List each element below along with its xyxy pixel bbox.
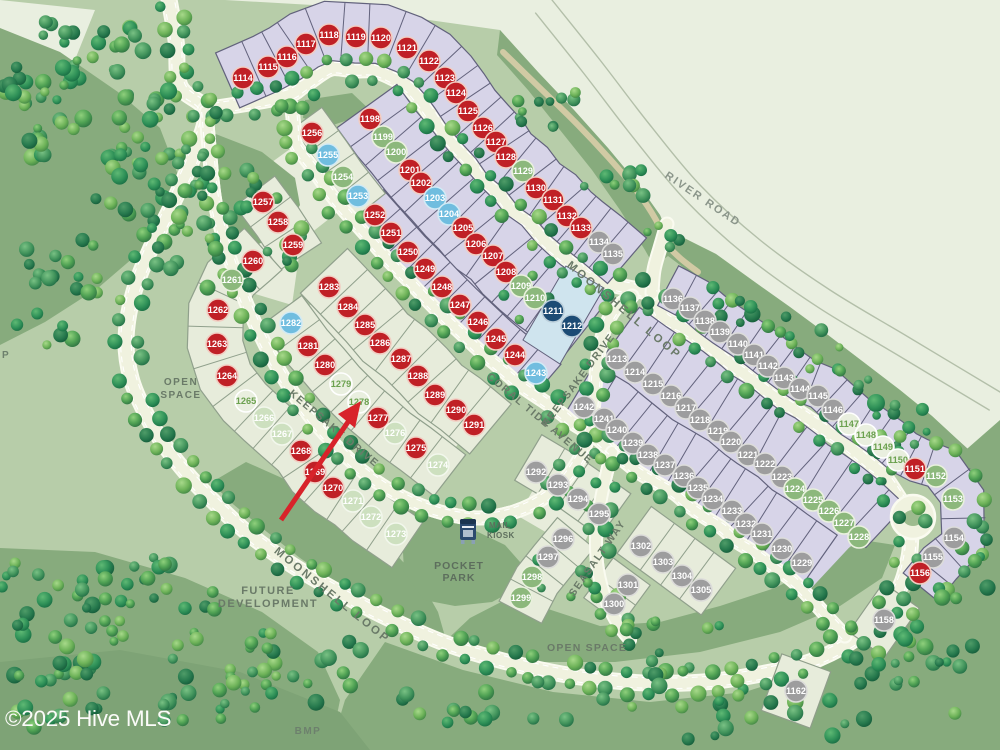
svg-text:1282: 1282 [281,318,301,328]
svg-text:1265: 1265 [236,396,256,406]
svg-text:1114: 1114 [233,73,253,83]
svg-text:1289: 1289 [425,390,445,400]
svg-text:1271: 1271 [343,496,363,506]
svg-text:1130: 1130 [526,183,546,193]
svg-text:1214: 1214 [625,367,646,377]
svg-text:1116: 1116 [277,52,296,62]
svg-text:POCKET: POCKET [434,560,484,572]
svg-text:1299: 1299 [511,593,531,603]
svg-text:1126: 1126 [473,123,493,133]
svg-text:1158: 1158 [874,615,894,625]
svg-text:1218: 1218 [690,415,710,425]
svg-text:1208: 1208 [496,267,516,277]
svg-text:1261: 1261 [222,275,242,285]
svg-text:1240: 1240 [607,425,627,435]
svg-text:1231: 1231 [752,529,772,539]
svg-text:1250: 1250 [398,247,418,257]
svg-text:1272: 1272 [361,512,381,522]
svg-text:1162: 1162 [786,686,806,696]
svg-text:1290: 1290 [446,405,466,415]
svg-text:P: P [2,350,10,361]
svg-text:1259: 1259 [283,240,303,250]
svg-text:1274: 1274 [428,460,449,470]
svg-text:1220: 1220 [721,437,741,447]
svg-text:1254: 1254 [333,172,354,182]
svg-text:1264: 1264 [217,371,238,381]
svg-text:1292: 1292 [526,467,546,477]
svg-text:1260: 1260 [243,256,263,266]
svg-text:1293: 1293 [548,480,568,490]
svg-text:1302: 1302 [631,541,651,551]
svg-text:1270: 1270 [323,483,343,493]
svg-text:1258: 1258 [268,217,288,227]
svg-text:1123: 1123 [435,73,455,83]
svg-text:1295: 1295 [589,509,609,519]
svg-text:1122: 1122 [419,56,439,66]
svg-text:1121: 1121 [397,43,417,53]
svg-text:1228: 1228 [849,532,869,542]
svg-text:1249: 1249 [415,264,435,274]
svg-text:1237: 1237 [655,460,675,470]
svg-text:1300: 1300 [604,599,624,609]
svg-text:1203: 1203 [425,193,445,203]
svg-text:1298: 1298 [522,572,542,582]
svg-text:1279: 1279 [331,379,351,389]
svg-text:1131: 1131 [543,195,563,205]
svg-text:1200: 1200 [386,147,406,157]
svg-text:1147: 1147 [839,419,859,429]
svg-text:FUTURE: FUTURE [241,585,295,597]
svg-text:1120: 1120 [371,33,391,43]
svg-text:1199: 1199 [373,132,393,142]
svg-text:1206: 1206 [466,239,486,249]
svg-text:1205: 1205 [453,223,473,233]
svg-text:1213: 1213 [607,354,627,364]
svg-text:1118: 1118 [319,30,338,40]
svg-text:1304: 1304 [672,571,693,581]
svg-text:1135: 1135 [603,249,623,259]
svg-text:1207: 1207 [483,251,503,261]
svg-text:1243: 1243 [526,368,546,378]
svg-text:1287: 1287 [391,354,411,364]
svg-text:1146: 1146 [823,405,843,415]
svg-text:1281: 1281 [298,341,318,351]
svg-text:1124: 1124 [446,88,467,98]
svg-text:1129: 1129 [513,166,533,176]
svg-text:1275: 1275 [406,443,426,453]
svg-text:1251: 1251 [381,228,401,238]
svg-text:1262: 1262 [208,305,228,315]
svg-text:1210: 1210 [525,293,545,303]
svg-text:1285: 1285 [355,320,375,330]
svg-text:1294: 1294 [568,494,589,504]
svg-text:1119: 1119 [346,32,365,42]
svg-text:1263: 1263 [207,339,227,349]
svg-text:1148: 1148 [856,430,876,440]
svg-text:1286: 1286 [370,338,390,348]
svg-text:1257: 1257 [253,197,273,207]
svg-text:1305: 1305 [691,585,711,595]
svg-text:1273: 1273 [386,529,406,539]
svg-text:1248: 1248 [432,282,452,292]
svg-text:1202: 1202 [411,178,431,188]
svg-text:1222: 1222 [755,459,775,469]
svg-text:1253: 1253 [348,191,368,201]
svg-text:1246: 1246 [468,317,488,327]
svg-text:1198: 1198 [360,114,380,124]
svg-text:1247: 1247 [450,300,470,310]
svg-text:1255: 1255 [318,150,338,160]
svg-text:1133: 1133 [571,223,591,233]
svg-text:1156: 1156 [910,568,930,578]
svg-text:1284: 1284 [338,302,359,312]
svg-text:1256: 1256 [302,128,322,138]
svg-text:1149: 1149 [873,442,893,452]
svg-text:1145: 1145 [808,391,828,401]
svg-text:MAIL: MAIL [489,521,511,530]
svg-text:KIOSK: KIOSK [487,531,515,540]
svg-text:1229: 1229 [792,558,812,568]
svg-text:1291: 1291 [464,420,484,430]
svg-text:OPEN SPACE: OPEN SPACE [547,642,627,654]
svg-text:OPEN: OPEN [164,377,198,388]
svg-text:©2025 Hive MLS: ©2025 Hive MLS [5,706,171,731]
svg-text:1276: 1276 [385,428,405,438]
svg-text:1266: 1266 [254,413,274,423]
svg-text:1204: 1204 [439,209,460,219]
svg-text:1117: 1117 [296,39,315,49]
svg-text:DEVELOPMENT: DEVELOPMENT [218,598,318,610]
svg-text:1268: 1268 [291,446,311,456]
svg-text:1245: 1245 [486,334,506,344]
svg-text:1155: 1155 [923,552,943,562]
svg-text:1252: 1252 [365,210,385,220]
svg-text:1139: 1139 [710,327,730,337]
svg-text:1151: 1151 [905,464,925,474]
svg-text:1267: 1267 [272,429,292,439]
svg-text:1277: 1277 [368,413,388,423]
svg-text:1153: 1153 [943,494,963,504]
svg-text:1215: 1215 [643,379,663,389]
svg-text:BMP: BMP [295,726,322,737]
svg-text:1297: 1297 [538,552,558,562]
svg-text:1125: 1125 [458,106,478,116]
svg-text:1288: 1288 [408,371,428,381]
svg-text:1230: 1230 [772,544,792,554]
svg-text:1234: 1234 [703,494,724,504]
svg-text:1242: 1242 [574,402,594,412]
svg-text:SPACE: SPACE [160,390,201,401]
svg-text:PARK: PARK [443,572,476,584]
svg-text:1301: 1301 [618,580,638,590]
svg-text:1142: 1142 [758,361,778,371]
svg-text:1280: 1280 [315,360,335,370]
svg-text:1115: 1115 [258,62,277,72]
svg-text:1128: 1128 [496,152,516,162]
svg-text:1283: 1283 [319,282,339,292]
svg-text:1303: 1303 [653,557,673,567]
svg-text:1296: 1296 [553,534,573,544]
svg-text:1244: 1244 [505,350,526,360]
svg-text:1137: 1137 [680,303,700,313]
svg-text:1212: 1212 [562,321,582,331]
svg-text:1211: 1211 [543,306,563,316]
svg-text:1224: 1224 [785,484,806,494]
svg-text:1154: 1154 [944,533,965,543]
svg-text:1152: 1152 [926,471,946,481]
svg-text:1227: 1227 [834,518,854,528]
